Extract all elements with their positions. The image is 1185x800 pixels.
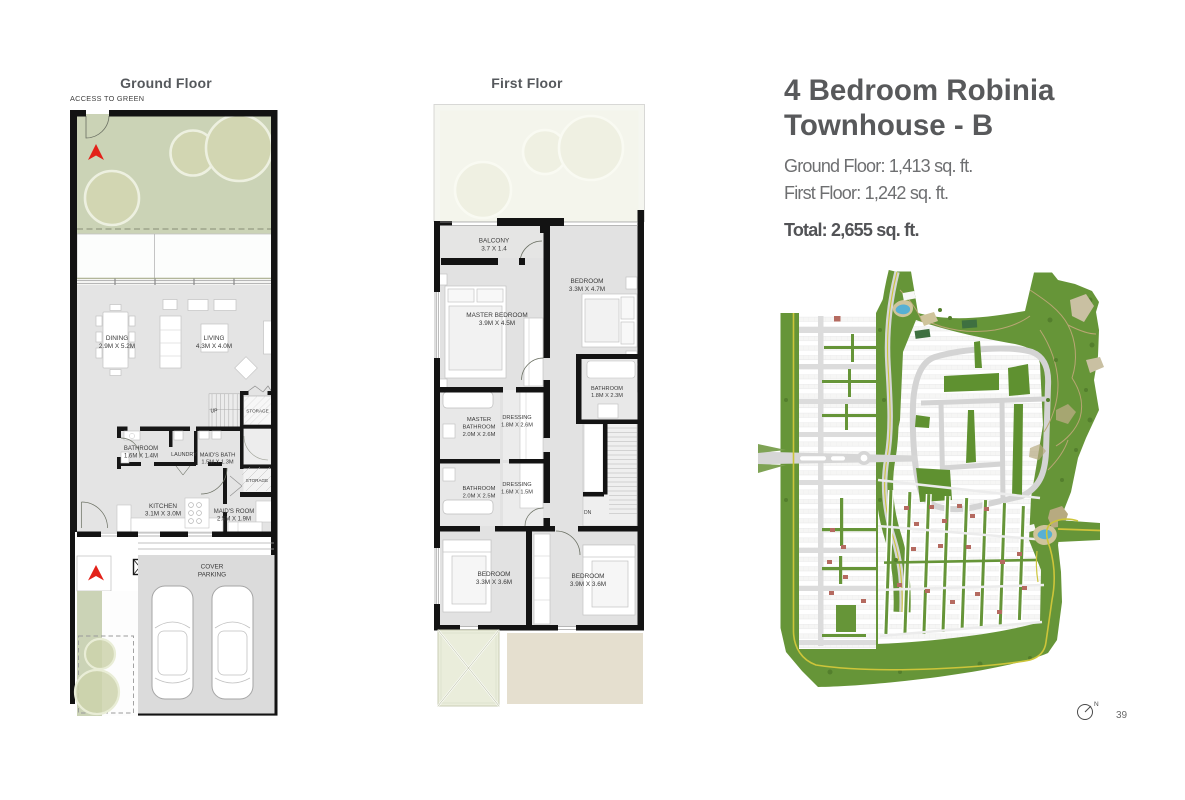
svg-text:1.6M X 1.4M: 1.6M X 1.4M [124, 454, 158, 460]
svg-text:2.9M X 5.2M: 2.9M X 5.2M [99, 343, 135, 350]
svg-text:ACCESS TO GREEN: ACCESS TO GREEN [70, 94, 144, 103]
svg-text:PARKING: PARKING [198, 572, 226, 579]
svg-text:UP: UP [211, 409, 219, 415]
svg-text:4.3M X 4.0M: 4.3M X 4.0M [196, 343, 232, 350]
svg-text:3.9M X 4.5M: 3.9M X 4.5M [479, 320, 515, 327]
svg-text:39: 39 [1116, 710, 1128, 721]
svg-text:BATHROOM: BATHROOM [462, 425, 495, 431]
svg-text:3.1M X 3.0M: 3.1M X 3.0M [145, 511, 181, 518]
svg-text:1.6M X 1.5M: 1.6M X 1.5M [501, 490, 533, 496]
svg-text:Ground Floor: Ground Floor [120, 75, 212, 91]
svg-text:3.7 X 1.4: 3.7 X 1.4 [481, 246, 507, 253]
svg-text:BATHROOM: BATHROOM [124, 446, 158, 452]
svg-text:BEDROOM: BEDROOM [477, 571, 510, 578]
svg-text:3.3M X 3.6M: 3.3M X 3.6M [476, 579, 512, 586]
svg-text:MASTER BEDROOM: MASTER BEDROOM [466, 312, 527, 319]
svg-text:1.8M X 2.6M: 1.8M X 2.6M [501, 423, 533, 429]
svg-text:2.5M X 1.9M: 2.5M X 1.9M [217, 517, 251, 523]
svg-text:MASTER: MASTER [467, 417, 491, 423]
svg-text:DRESSING: DRESSING [502, 415, 531, 421]
svg-text:DINING: DINING [106, 335, 128, 342]
svg-text:BEDROOM: BEDROOM [571, 573, 604, 580]
svg-text:BATHROOM: BATHROOM [591, 386, 623, 392]
svg-text:N: N [1094, 701, 1099, 708]
svg-text:2.0M X 2.6M: 2.0M X 2.6M [463, 432, 496, 438]
svg-text:DRESSING: DRESSING [502, 482, 531, 488]
svg-text:MAID'S ROOM: MAID'S ROOM [214, 509, 254, 515]
svg-text:1.8M X 2.3M: 1.8M X 2.3M [591, 393, 623, 399]
svg-text:STORAGE: STORAGE [246, 478, 268, 483]
svg-text:First Floor: First Floor [491, 75, 563, 91]
svg-text:First Floor: 1,242 sq. ft.: First Floor: 1,242 sq. ft. [784, 183, 948, 203]
svg-text:BATHROOM: BATHROOM [462, 486, 495, 492]
svg-text:LAUNDRY: LAUNDRY [171, 452, 197, 458]
svg-text:DN: DN [584, 510, 592, 516]
svg-text:1.5M X 1.3M: 1.5M X 1.3M [201, 460, 234, 466]
svg-text:3.3M X 4.7M: 3.3M X 4.7M [569, 286, 605, 293]
svg-text:Total: 2,655 sq. ft.: Total: 2,655 sq. ft. [784, 220, 919, 240]
svg-text:COVER: COVER [201, 564, 224, 571]
svg-text:STORAGE: STORAGE [246, 409, 268, 414]
svg-text:3.9M X 3.6M: 3.9M X 3.6M [570, 581, 606, 588]
svg-text:LIVING: LIVING [204, 335, 225, 342]
svg-text:BALCONY: BALCONY [479, 238, 510, 245]
svg-text:KITCHEN: KITCHEN [149, 503, 177, 510]
svg-text:MAID'S BATH: MAID'S BATH [200, 453, 235, 459]
svg-text:2.0M X 2.5M: 2.0M X 2.5M [463, 494, 496, 500]
svg-text:Townhouse - B: Townhouse - B [784, 109, 993, 142]
svg-text:Ground Floor: 1,413 sq. ft.: Ground Floor: 1,413 sq. ft. [784, 156, 973, 176]
svg-text:BEDROOM: BEDROOM [570, 278, 603, 285]
svg-text:4 Bedroom Robinia: 4 Bedroom Robinia [784, 74, 1055, 107]
